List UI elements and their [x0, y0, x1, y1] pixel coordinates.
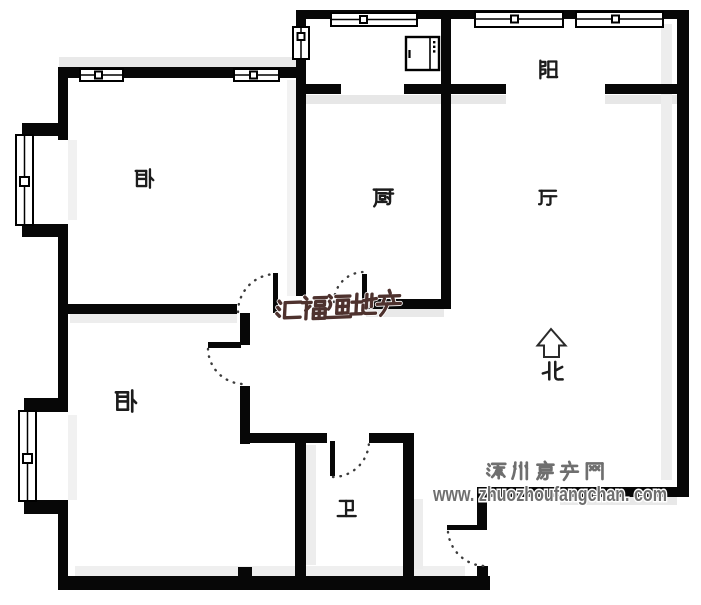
- svg-text:www. zhuozhoufangchan. com: www. zhuozhoufangchan. com: [432, 484, 667, 506]
